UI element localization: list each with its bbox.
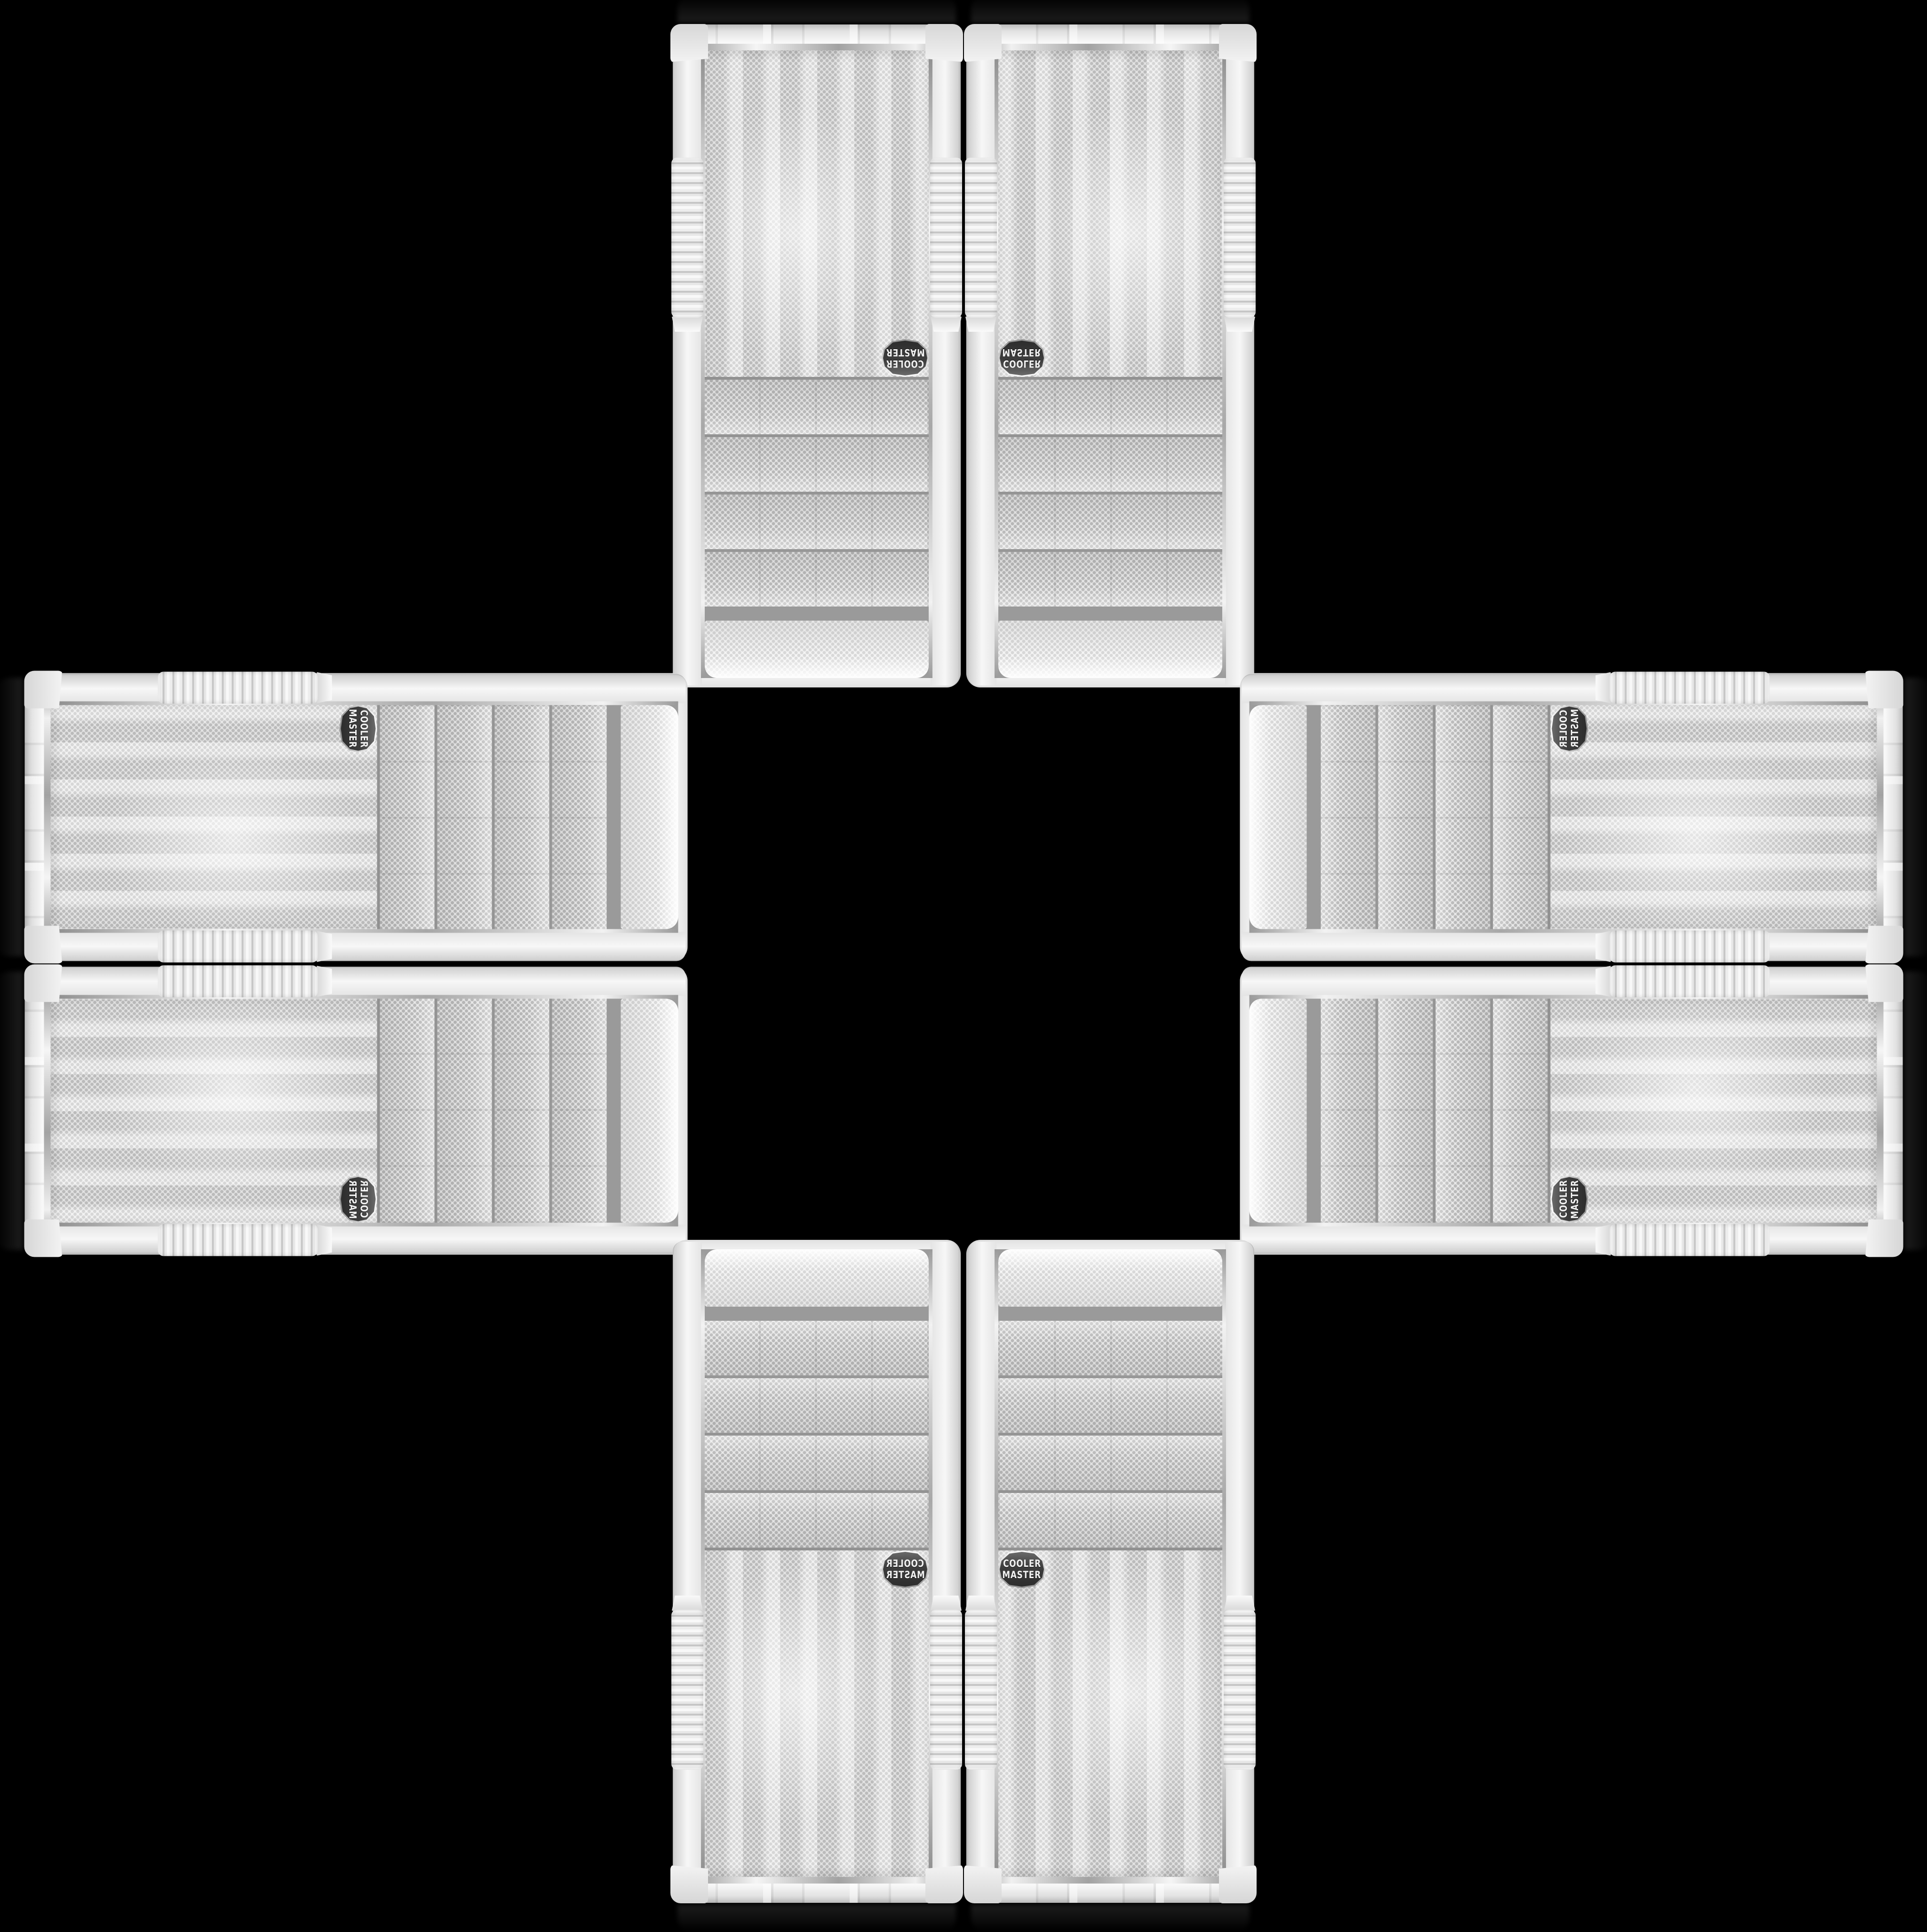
- badge-text-line2: MASTER: [886, 347, 925, 358]
- drive-bay-cover-2: [494, 705, 549, 929]
- chrome-trim-left: [995, 1249, 998, 1878]
- grip-step-right: [1224, 317, 1255, 332]
- chrome-trim-left: [1249, 701, 1878, 705]
- chrome-trim-right: [49, 995, 678, 998]
- floor-reflection: [677, 0, 956, 23]
- drive-bay-cover-2: [998, 1378, 1222, 1433]
- badge-text-line2: MASTER: [886, 1569, 925, 1581]
- drive-bay-cover-3: [1435, 705, 1490, 929]
- badge-text-line2: MASTER: [1003, 347, 1042, 358]
- grip-step-left: [317, 1224, 332, 1255]
- pc-case-bottom-right: COOLER MASTER: [966, 1238, 1254, 1904]
- bottom-cap: [1883, 968, 1903, 1253]
- cooler-master-badge-icon: COOLER MASTER: [882, 1550, 929, 1588]
- drive-bay-cover-4: [998, 1493, 1222, 1548]
- badge-face: COOLER MASTER: [341, 1177, 375, 1221]
- side-column-right: [1242, 966, 1900, 996]
- chrome-trim-bottom: [44, 679, 50, 954]
- cooler-master-badge-icon: COOLER MASTER: [882, 339, 929, 377]
- grip-step-right: [317, 966, 332, 997]
- chrome-trim-bottom: [679, 1877, 954, 1884]
- front-mesh-panel: COOLER MASTER: [998, 1550, 1222, 1877]
- foot-right: [24, 964, 64, 1002]
- cooler-master-badge-icon: COOLER MASTER: [998, 339, 1045, 377]
- badge-face: COOLER MASTER: [1552, 706, 1586, 750]
- floor-reflection: [971, 0, 1250, 23]
- drive-bay-cover-3: [998, 1436, 1222, 1490]
- badge-text-line1: COOLER: [1558, 710, 1569, 748]
- front-panel: COOLER MASTER: [705, 50, 929, 678]
- badge-text-line2: MASTER: [347, 1180, 358, 1219]
- side-grip-right: [1224, 158, 1256, 318]
- side-grip-right: [158, 965, 318, 997]
- side-column-right: [673, 1242, 702, 1900]
- drive-bay-cover-1: [705, 552, 929, 607]
- bottom-cap-tabs: [24, 687, 44, 947]
- collage-stage: COOLER MASTER: [0, 0, 1927, 1927]
- side-column-right: [1242, 932, 1900, 961]
- grip-step-left: [1595, 672, 1610, 703]
- badge-text-line1: COOLER: [358, 1180, 369, 1218]
- grip-step-right: [672, 317, 703, 332]
- drive-bay-cover-4: [380, 705, 434, 929]
- top-vent-cover: [705, 1249, 929, 1307]
- side-grip-left: [1609, 1224, 1769, 1256]
- side-grip-right: [1609, 965, 1769, 997]
- bottom-cap-tabs: [980, 24, 1240, 44]
- foot-left: [24, 671, 64, 708]
- drive-bay-cover-4: [705, 1493, 929, 1548]
- pc-case-right-bottom: COOLER MASTER: [1238, 966, 1903, 1254]
- chrome-trim-right: [1249, 995, 1878, 998]
- front-mesh-panel: COOLER MASTER: [705, 50, 929, 377]
- cooler-master-badge-icon: COOLER MASTER: [998, 1550, 1045, 1588]
- foot-right: [1863, 926, 1903, 963]
- pc-case-top-right: COOLER MASTER: [966, 24, 1254, 689]
- front-mesh-panel: COOLER MASTER: [50, 705, 377, 929]
- chrome-trim-bottom: [1877, 679, 1883, 954]
- top-vent-cover: [705, 621, 929, 678]
- bottom-cap: [24, 968, 44, 1253]
- foot-right: [1219, 24, 1257, 64]
- side-grip-left: [965, 1610, 997, 1770]
- foot-left: [925, 1864, 963, 1903]
- chrome-trim-right: [49, 929, 678, 933]
- floor-reflection: [677, 1905, 956, 1932]
- badge-text-line2: MASTER: [1569, 1180, 1580, 1219]
- badge-face: COOLER MASTER: [883, 1552, 927, 1587]
- side-grip-right: [671, 1610, 703, 1770]
- front-panel: COOLER MASTER: [1249, 998, 1877, 1222]
- drive-bay-cover-3: [998, 437, 1222, 492]
- pc-case-top-left: COOLER MASTER: [673, 24, 961, 689]
- front-mesh-panel: COOLER MASTER: [1550, 705, 1877, 929]
- chrome-trim-bottom: [973, 1877, 1248, 1884]
- grip-step-right: [1224, 1596, 1255, 1611]
- foot-left: [964, 1864, 1002, 1903]
- foot-right: [24, 926, 64, 963]
- foot-left: [1863, 671, 1903, 708]
- side-column-left: [967, 27, 996, 686]
- pc-case-bottom-left: COOLER MASTER: [673, 1238, 961, 1904]
- side-grip-left: [158, 671, 318, 703]
- top-vent-cover: [621, 998, 678, 1222]
- front-panel: COOLER MASTER: [705, 1249, 929, 1877]
- bottom-cap-tabs: [1883, 687, 1903, 947]
- side-column-left: [931, 1242, 960, 1900]
- foot-right: [1863, 964, 1903, 1002]
- top-vent-cover: [621, 705, 678, 929]
- grip-step-left: [965, 317, 996, 332]
- chrome-trim-right: [1249, 929, 1878, 933]
- badge-face: COOLER MASTER: [1000, 341, 1044, 375]
- bottom-cap-tabs: [687, 1884, 947, 1903]
- badge-face: COOLER MASTER: [1552, 1177, 1586, 1221]
- badge-text-line2: MASTER: [347, 709, 358, 748]
- pc-case-left-top: COOLER MASTER: [24, 673, 689, 961]
- front-mesh-panel: COOLER MASTER: [1550, 998, 1877, 1222]
- side-column-left: [27, 1224, 685, 1253]
- drive-bay-cover-4: [705, 380, 929, 434]
- badge-text-line1: COOLER: [1003, 358, 1041, 369]
- side-grip-right: [671, 158, 703, 318]
- drive-bay-cover-4: [998, 380, 1222, 434]
- drive-bay-cover-3: [705, 1436, 929, 1490]
- grip-step-left: [965, 1596, 996, 1611]
- badge-face: COOLER MASTER: [341, 706, 375, 750]
- foot-left: [964, 24, 1002, 64]
- bottom-cap: [1883, 675, 1903, 959]
- drive-bay-cover-2: [1378, 705, 1433, 929]
- badge-text-line1: COOLER: [358, 710, 369, 748]
- badge-face: COOLER MASTER: [1000, 1552, 1044, 1587]
- side-grip-left: [930, 158, 962, 318]
- badge-text-line1: COOLER: [1558, 1180, 1569, 1218]
- side-grip-left: [158, 1224, 318, 1256]
- side-grip-left: [1609, 671, 1769, 703]
- bottom-cap: [968, 24, 1252, 44]
- chrome-trim-left: [49, 701, 678, 705]
- front-mesh-panel: COOLER MASTER: [705, 1550, 929, 1877]
- drive-bay-cover-2: [705, 495, 929, 549]
- drive-bay-cover-4: [1493, 705, 1547, 929]
- side-column-right: [1225, 1242, 1254, 1900]
- bottom-cap-tabs: [980, 1884, 1240, 1903]
- grip-step-right: [672, 1596, 703, 1611]
- foot-left: [1863, 1219, 1903, 1257]
- cooler-master-badge-icon: COOLER MASTER: [1550, 705, 1588, 752]
- grip-step-right: [1595, 931, 1610, 962]
- foot-left: [24, 1219, 64, 1257]
- drive-bay-cover-3: [705, 437, 929, 492]
- drive-bay-cover-3: [1435, 998, 1490, 1222]
- chrome-trim-bottom: [679, 44, 954, 50]
- floor-reflection: [971, 1905, 1250, 1932]
- side-grip-right: [158, 930, 318, 962]
- side-grip-right: [1224, 1610, 1256, 1770]
- badge-text-line1: COOLER: [886, 358, 924, 369]
- front-panel: COOLER MASTER: [50, 998, 678, 1222]
- front-panel: COOLER MASTER: [1249, 705, 1877, 929]
- top-vent-cover: [1249, 998, 1306, 1222]
- bottom-cap-tabs: [1883, 981, 1903, 1240]
- floor-reflection: [1904, 971, 1927, 1250]
- drive-bay-cover-3: [437, 705, 492, 929]
- drive-bay-cover-2: [494, 998, 549, 1222]
- drive-bay-cover-2: [998, 495, 1222, 549]
- foot-left: [925, 24, 963, 64]
- badge-face: COOLER MASTER: [883, 341, 927, 375]
- side-column-right: [1225, 27, 1254, 686]
- chrome-trim-bottom: [44, 973, 50, 1248]
- foot-right: [670, 1864, 708, 1903]
- floor-reflection: [0, 971, 23, 1250]
- chrome-trim-right: [1222, 1249, 1226, 1878]
- drive-bay-cover-3: [437, 998, 492, 1222]
- drive-bay-cover-2: [705, 1378, 929, 1433]
- front-panel: COOLER MASTER: [998, 50, 1222, 678]
- grip-step-left: [931, 317, 962, 332]
- chrome-trim-left: [929, 49, 932, 678]
- foot-right: [670, 24, 708, 64]
- chrome-trim-right: [701, 1249, 705, 1878]
- chrome-trim-left: [929, 1249, 932, 1878]
- side-column-left: [931, 27, 960, 686]
- chrome-trim-left: [1249, 1222, 1878, 1226]
- chrome-trim-bottom: [973, 44, 1248, 50]
- cooler-master-badge-icon: COOLER MASTER: [1550, 1175, 1588, 1222]
- chrome-trim-bottom: [1877, 973, 1883, 1248]
- cooler-master-badge-icon: COOLER MASTER: [339, 1175, 377, 1222]
- side-column-left: [1242, 674, 1900, 703]
- bottom-cap-tabs: [24, 981, 44, 1240]
- grip-step-left: [931, 1596, 962, 1611]
- badge-text-line2: MASTER: [1003, 1569, 1042, 1581]
- bottom-cap-tabs: [687, 24, 947, 44]
- bottom-cap: [675, 24, 959, 44]
- pc-case-left-bottom: COOLER MASTER: [24, 966, 689, 1254]
- front-mesh-panel: COOLER MASTER: [998, 50, 1222, 377]
- side-grip-left: [930, 1610, 962, 1770]
- grip-step-left: [1595, 1224, 1610, 1255]
- pc-case-right-top: COOLER MASTER: [1238, 673, 1903, 961]
- top-vent-cover: [998, 1249, 1222, 1307]
- drive-bay-cover-1: [1321, 998, 1375, 1222]
- front-panel: COOLER MASTER: [998, 1249, 1222, 1877]
- cooler-master-badge-icon: COOLER MASTER: [339, 705, 377, 752]
- bottom-cap: [675, 1884, 959, 1903]
- drive-bay-cover-1: [998, 552, 1222, 607]
- chrome-trim-left: [995, 49, 998, 678]
- drive-bay-cover-2: [1378, 998, 1433, 1222]
- floor-reflection: [1904, 678, 1927, 956]
- top-vent-cover: [1249, 705, 1306, 929]
- grip-step-right: [1595, 966, 1610, 997]
- drive-bay-cover-1: [705, 1321, 929, 1375]
- front-mesh-panel: COOLER MASTER: [50, 998, 377, 1222]
- badge-text-line2: MASTER: [1569, 709, 1580, 748]
- drive-bay-cover-1: [998, 1321, 1222, 1375]
- side-grip-left: [965, 158, 997, 318]
- side-column-right: [27, 966, 685, 996]
- side-column-right: [673, 27, 702, 686]
- front-panel: COOLER MASTER: [50, 705, 678, 929]
- drive-bay-cover-4: [1493, 998, 1547, 1222]
- floor-reflection: [0, 678, 23, 956]
- chrome-trim-right: [701, 49, 705, 678]
- drive-bay-cover-1: [552, 705, 606, 929]
- badge-text-line1: COOLER: [886, 1558, 924, 1569]
- side-column-left: [1242, 1224, 1900, 1253]
- grip-step-right: [317, 931, 332, 962]
- drive-bay-cover-1: [1321, 705, 1375, 929]
- side-column-left: [967, 1242, 996, 1900]
- drive-bay-cover-1: [552, 998, 606, 1222]
- bottom-cap: [968, 1884, 1252, 1903]
- drive-bay-cover-4: [380, 998, 434, 1222]
- top-vent-cover: [998, 621, 1222, 678]
- side-column-left: [27, 674, 685, 703]
- bottom-cap: [24, 675, 44, 959]
- chrome-trim-right: [1222, 49, 1226, 678]
- side-column-right: [27, 932, 685, 961]
- badge-text-line1: COOLER: [1003, 1558, 1041, 1569]
- grip-step-left: [317, 672, 332, 703]
- side-grip-right: [1609, 930, 1769, 962]
- foot-right: [1219, 1864, 1257, 1903]
- chrome-trim-left: [49, 1222, 678, 1226]
